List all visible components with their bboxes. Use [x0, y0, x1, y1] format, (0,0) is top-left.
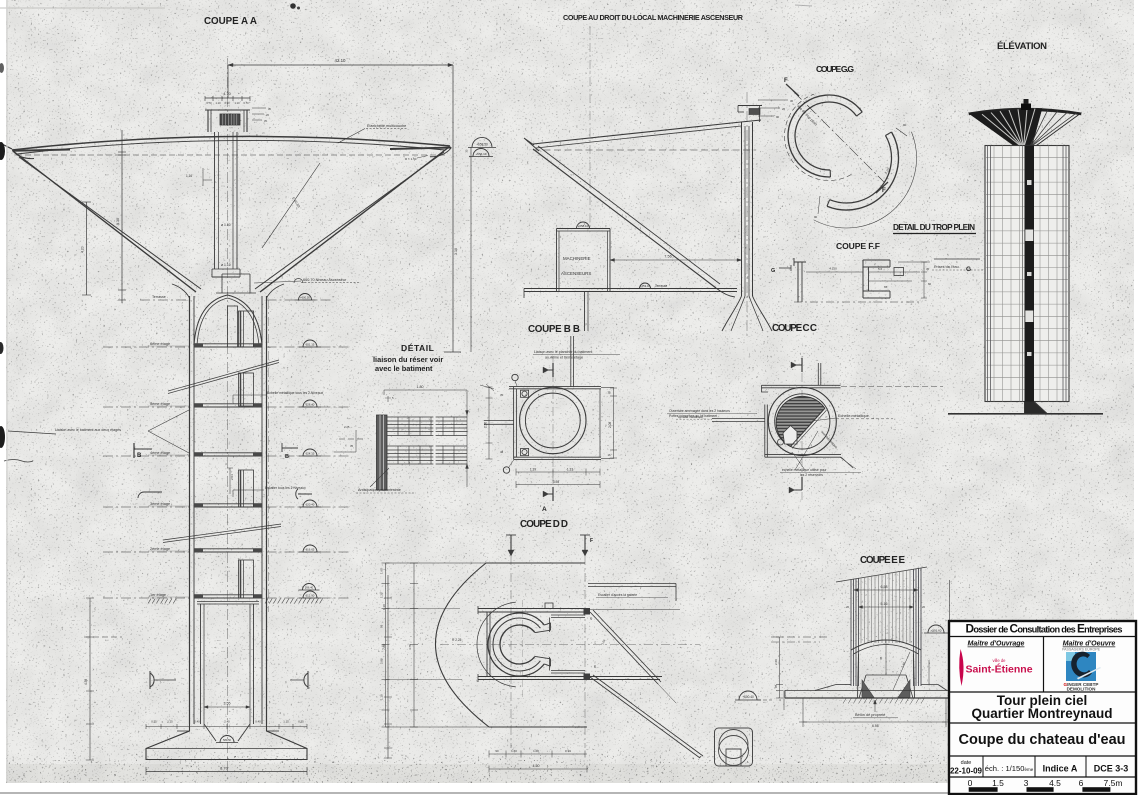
- svg-text:Terrasse: Terrasse: [152, 295, 166, 299]
- svg-text:1.60: 1.60: [511, 749, 517, 753]
- svg-text:DETAIL DU TROP PLEIN: DETAIL DU TROP PLEIN: [893, 223, 975, 232]
- svg-text:COUPE C C: COUPE C C: [772, 323, 817, 334]
- svg-text:616.65: 616.65: [306, 548, 315, 552]
- svg-text:Etanchéité multicouche: Etanchéité multicouche: [367, 124, 406, 128]
- svg-text:90: 90: [903, 123, 907, 127]
- svg-text:22-10-09: 22-10-09: [950, 767, 983, 776]
- svg-text:7.56: 7.56: [664, 255, 671, 259]
- svg-text:DCE 3-3: DCE 3-3: [1094, 764, 1129, 774]
- svg-text:1.26: 1.26: [380, 592, 384, 598]
- svg-text:COUPE A A: COUPE A A: [204, 16, 257, 27]
- svg-text:4.70: 4.70: [223, 92, 230, 96]
- svg-text:0.40: 0.40: [194, 720, 200, 724]
- svg-text:7.5m: 7.5m: [1104, 778, 1123, 788]
- svg-text:F: F: [882, 188, 886, 194]
- svg-text:Maitre d'Oeuvre: Maitre d'Oeuvre: [1063, 641, 1116, 648]
- svg-text:Dossier de Consultation des En: Dossier de Consultation des Entreprises: [966, 622, 1123, 636]
- svg-text:620.40: 620.40: [306, 503, 315, 507]
- svg-text:35: 35: [350, 444, 354, 448]
- svg-text:F: F: [590, 538, 593, 544]
- svg-text:4.20: 4.20: [81, 246, 85, 253]
- svg-text:612.90: 612.90: [306, 594, 315, 598]
- svg-text:ASCENSEURS: ASCENSEURS: [561, 271, 591, 276]
- svg-text:6.58: 6.58: [881, 585, 888, 589]
- svg-text:PASSAGERS EUROPE: PASSAGERS EUROPE: [1062, 648, 1101, 652]
- svg-text:6.98: 6.98: [872, 724, 879, 728]
- svg-text:Coupe du chateau d'eau: Coupe du chateau d'eau: [959, 732, 1126, 748]
- svg-text:90: 90: [814, 215, 818, 219]
- svg-text:2.60: 2.60: [774, 659, 778, 665]
- svg-text:2.40: 2.40: [224, 720, 230, 724]
- svg-text:3ème étage: 3ème étage: [150, 502, 170, 506]
- svg-text:Prises de l'eau: Prises de l'eau: [934, 265, 959, 269]
- svg-text:35: 35: [500, 393, 504, 397]
- svg-text:2ème étage: 2ème étage: [150, 547, 170, 551]
- svg-text:2.50: 2.50: [484, 422, 488, 428]
- svg-text:95: 95: [380, 624, 384, 628]
- svg-text:3.55: 3.55: [224, 702, 231, 706]
- svg-text:G: G: [966, 266, 971, 273]
- svg-text:+600.30: +600.30: [300, 296, 310, 300]
- svg-text:1.00: 1.00: [533, 749, 539, 753]
- svg-text:avec le batiment: avec le batiment: [375, 364, 433, 373]
- svg-text:Echelle métallique: Echelle métallique: [838, 414, 869, 418]
- svg-text:COUPE B B: COUPE B B: [528, 324, 580, 335]
- svg-text:1.10: 1.10: [380, 694, 384, 700]
- svg-text:COUPE G.G: COUPE G.G: [816, 64, 854, 74]
- svg-text:2.25: 2.25: [344, 425, 350, 429]
- svg-text:3: 3: [1024, 778, 1029, 788]
- svg-text:20: 20: [589, 616, 593, 620]
- svg-text:42.10: 42.10: [335, 58, 347, 63]
- svg-text:MACHINERIE: MACHINERIE: [563, 256, 591, 261]
- svg-text:4.150: 4.150: [829, 267, 837, 271]
- svg-text:0.55: 0.55: [298, 720, 304, 724]
- svg-text:20: 20: [922, 605, 926, 609]
- svg-text:echelle métallique utilisé pou: echelle métallique utilisé pour: [782, 468, 827, 472]
- svg-text:DÉTAIL: DÉTAIL: [401, 343, 434, 353]
- svg-text:COUPE F.F: COUPE F.F: [836, 241, 880, 251]
- svg-text:Maitre d'Ouvrage: Maitre d'Ouvrage: [968, 641, 1025, 648]
- svg-text:0.40: 0.40: [255, 720, 261, 724]
- svg-text:90: 90: [495, 749, 499, 753]
- svg-text:1er étage: 1er étage: [150, 593, 166, 597]
- svg-text:Saint-Étienne: Saint-Étienne: [965, 663, 1032, 676]
- svg-text:624.15: 624.15: [306, 452, 315, 456]
- svg-text:COUPE E E: COUPE E E: [860, 555, 905, 566]
- svg-text:65: 65: [884, 285, 888, 289]
- svg-text:4ème étage: 4ème étage: [150, 451, 170, 455]
- svg-text:au 4ème et 6ème étage: au 4ème et 6ème étage: [545, 356, 583, 360]
- svg-text:R 2.25: R 2.25: [452, 638, 462, 642]
- svg-text:20: 20: [846, 605, 850, 609]
- svg-text:4.5: 4.5: [1049, 778, 1061, 788]
- svg-text:46: 46: [500, 450, 504, 454]
- svg-text:3.98: 3.98: [553, 480, 559, 484]
- svg-text:Escalier d'accès la galerie: Escalier d'accès la galerie: [598, 593, 637, 597]
- svg-text:ø 1.10: ø 1.10: [221, 263, 231, 267]
- svg-text:G: G: [771, 268, 775, 274]
- svg-text:+591.60: +591.60: [931, 629, 942, 633]
- svg-text:4.58: 4.58: [84, 679, 88, 685]
- svg-text:26: 26: [782, 107, 786, 111]
- svg-text:COUPE D D: COUPE D D: [520, 519, 568, 530]
- svg-text:Ouverture aménagée dans les 2: Ouverture aménagée dans les 2 hauteurs: [669, 409, 730, 413]
- svg-text:1.16: 1.16: [186, 174, 192, 178]
- svg-text:B: B: [285, 454, 289, 460]
- svg-text:ville de: ville de: [992, 658, 1006, 663]
- svg-text:+658.50: +658.50: [476, 143, 488, 147]
- svg-text:0.70: 0.70: [206, 101, 212, 105]
- svg-text:1.33: 1.33: [567, 468, 573, 472]
- svg-text:1.10: 1.10: [234, 101, 240, 105]
- svg-text:30: 30: [790, 99, 794, 103]
- svg-text:+658.10: +658.10: [578, 224, 589, 228]
- svg-text:B: B: [137, 453, 142, 459]
- svg-text:600.70 Niveau Ascenseur: 600.70 Niveau Ascenseur: [303, 278, 347, 282]
- svg-text:ø 1.50: ø 1.50: [221, 223, 231, 227]
- svg-text:COUPE AU DROIT DU LOCAL MACHI: COUPE AU DROIT DU LOCAL MACHINERIE ASCEN…: [563, 13, 744, 22]
- svg-text:95: 95: [593, 664, 597, 668]
- svg-text:4.50: 4.50: [533, 764, 540, 768]
- svg-text:Quartier Montreynaud: Quartier Montreynaud: [971, 706, 1112, 721]
- svg-text:1.39: 1.39: [530, 468, 536, 472]
- svg-text:DEMOLITION: DEMOLITION: [1067, 687, 1097, 692]
- svg-text:Escalier tous les 2 Niveaux: Escalier tous les 2 Niveaux: [265, 486, 306, 490]
- svg-text:6: 6: [1079, 778, 1084, 788]
- svg-text:16: 16: [608, 453, 612, 457]
- svg-text:liaison du réser voir: liaison du réser voir: [373, 355, 443, 364]
- svg-text:2.88: 2.88: [380, 658, 384, 664]
- svg-text:+600.40: +600.40: [742, 695, 754, 699]
- svg-text:Terrasse: Terrasse: [655, 284, 667, 288]
- svg-text:Béton de propreté: Béton de propreté: [855, 713, 885, 717]
- svg-text:45: 45: [926, 267, 930, 271]
- svg-text:631.15: 631.15: [306, 343, 315, 347]
- svg-text:45: 45: [879, 656, 883, 660]
- svg-text:Liaison avec le plancher du ba: Liaison avec le plancher du batiment: [534, 350, 592, 354]
- svg-text:596.40: 596.40: [305, 586, 314, 590]
- svg-text:1.80: 1.80: [417, 385, 424, 389]
- svg-text:0.90: 0.90: [565, 749, 571, 753]
- svg-text:4.78: 4.78: [408, 644, 412, 650]
- svg-text:0.70: 0.70: [243, 101, 249, 105]
- svg-text:1.10: 1.10: [215, 101, 221, 105]
- svg-text:ÉLÉVATION: ÉLÉVATION: [997, 41, 1047, 52]
- svg-text:6ème étage: 6ème étage: [150, 342, 170, 346]
- svg-text:+653.30: +653.30: [640, 284, 650, 288]
- svg-text:35: 35: [608, 391, 612, 395]
- svg-text:R = 1.50: R = 1.50: [405, 157, 417, 161]
- svg-text:9.30: 9.30: [116, 218, 120, 225]
- svg-text:2.08: 2.08: [608, 422, 612, 428]
- svg-text:Antisipation précontrainte: Antisipation précontrainte: [358, 488, 401, 492]
- svg-text:2.04: 2.04: [230, 474, 234, 480]
- svg-text:8.70: 8.70: [220, 766, 229, 771]
- svg-text:5.6: 5.6: [878, 267, 883, 271]
- svg-text:3.10: 3.10: [454, 248, 458, 255]
- svg-text:+656.10: +656.10: [476, 152, 487, 156]
- svg-text:F: F: [784, 78, 788, 84]
- svg-text:1.60: 1.60: [380, 568, 384, 574]
- svg-text:1.15: 1.15: [167, 720, 173, 724]
- svg-text:Liaison avec le batiment aux d: Liaison avec le batiment aux deux étages: [55, 428, 121, 432]
- svg-text:les 2 réservoirs: les 2 réservoirs: [800, 473, 823, 477]
- svg-text:5ème étage: 5ème étage: [150, 402, 170, 406]
- svg-text:1.5: 1.5: [992, 778, 1004, 788]
- svg-text:date: date: [961, 760, 972, 766]
- svg-text:Indice A: Indice A: [1043, 764, 1078, 774]
- svg-text:A: A: [542, 506, 547, 513]
- svg-text:580.50: 580.50: [223, 738, 231, 742]
- svg-text:628.40: 628.40: [306, 403, 315, 407]
- svg-text:Echelle métallique tous les 2: Echelle métallique tous les 2 Niveaux: [267, 391, 323, 395]
- svg-text:0.55: 0.55: [151, 720, 157, 724]
- svg-text:90: 90: [776, 115, 780, 119]
- svg-text:1.15: 1.15: [283, 720, 289, 724]
- svg-text:5.16: 5.16: [881, 602, 888, 606]
- svg-text:ventelle métallique: ventelle métallique: [678, 415, 703, 419]
- svg-text:0: 0: [968, 778, 973, 788]
- svg-text:60: 60: [928, 282, 932, 286]
